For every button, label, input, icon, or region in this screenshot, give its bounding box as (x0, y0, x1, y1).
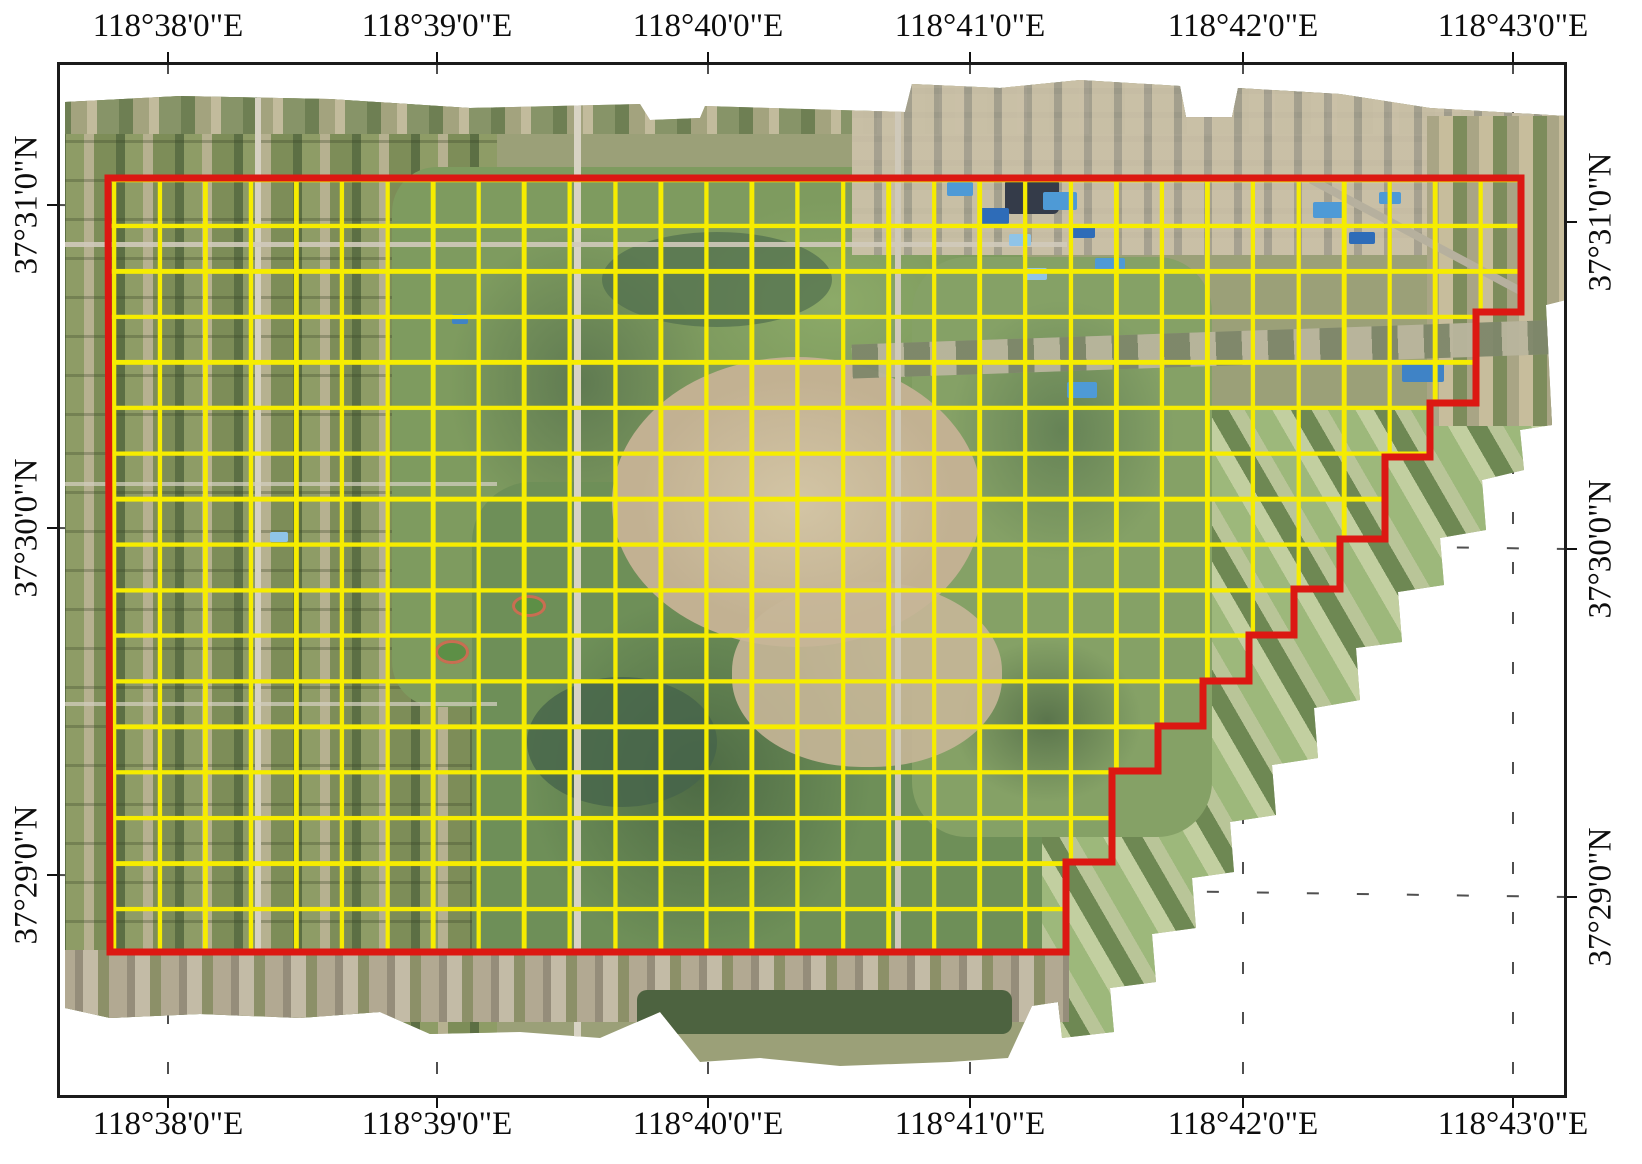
map-figure: 118°38'0"E 118°39'0"E 118°40'0"E 118°41'… (0, 0, 1642, 1164)
lat-label-left-1: 37°30'0"N (9, 459, 46, 598)
tick-bottom-1 (436, 1098, 438, 1108)
lon-label-bottom-1: 118°39'0"E (362, 1106, 513, 1143)
tick-right-1 (1567, 548, 1577, 550)
tick-bottom-3 (969, 1098, 971, 1108)
tick-top-1 (436, 52, 438, 62)
tick-top-4 (1242, 52, 1244, 62)
lat-label-left-0: 37°31'0"N (9, 136, 46, 275)
lon-label-bottom-5: 118°43'0"E (1438, 1106, 1589, 1143)
tick-right-0 (1567, 221, 1577, 223)
lon-label-bottom-2: 118°40'0"E (633, 1106, 784, 1143)
lat-label-right-2: 37°29'0"N (1583, 828, 1620, 967)
lon-label-bottom-3: 118°41'0"E (895, 1106, 1046, 1143)
lon-label-bottom-0: 118°38'0"E (93, 1106, 244, 1143)
lon-label-top-2: 118°40'0"E (633, 8, 784, 45)
tick-top-2 (707, 52, 709, 62)
tick-top-5 (1512, 52, 1514, 62)
lon-label-top-3: 118°41'0"E (895, 8, 1046, 45)
tick-left-1 (47, 527, 57, 529)
lon-label-top-0: 118°38'0"E (93, 8, 244, 45)
tick-bottom-2 (707, 1098, 709, 1108)
lat-label-right-0: 37°31'0"N (1583, 153, 1620, 292)
tick-left-2 (47, 874, 57, 876)
lat-label-left-2: 37°29'0"N (9, 806, 46, 945)
tick-top-0 (167, 52, 169, 62)
tick-bottom-0 (167, 1098, 169, 1108)
tick-top-3 (969, 52, 971, 62)
tick-right-2 (1567, 896, 1577, 898)
lat-label-right-1: 37°30'0"N (1583, 480, 1620, 619)
lon-label-top-5: 118°43'0"E (1438, 8, 1589, 45)
tick-left-0 (47, 204, 57, 206)
lon-label-top-4: 118°42'0"E (1168, 8, 1319, 45)
lon-label-bottom-4: 118°42'0"E (1168, 1106, 1319, 1143)
tick-bottom-4 (1242, 1098, 1244, 1108)
tick-bottom-5 (1512, 1098, 1514, 1108)
study-area-boundary (57, 62, 1567, 1098)
lon-label-top-1: 118°39'0"E (362, 8, 513, 45)
map-canvas (57, 62, 1567, 1098)
